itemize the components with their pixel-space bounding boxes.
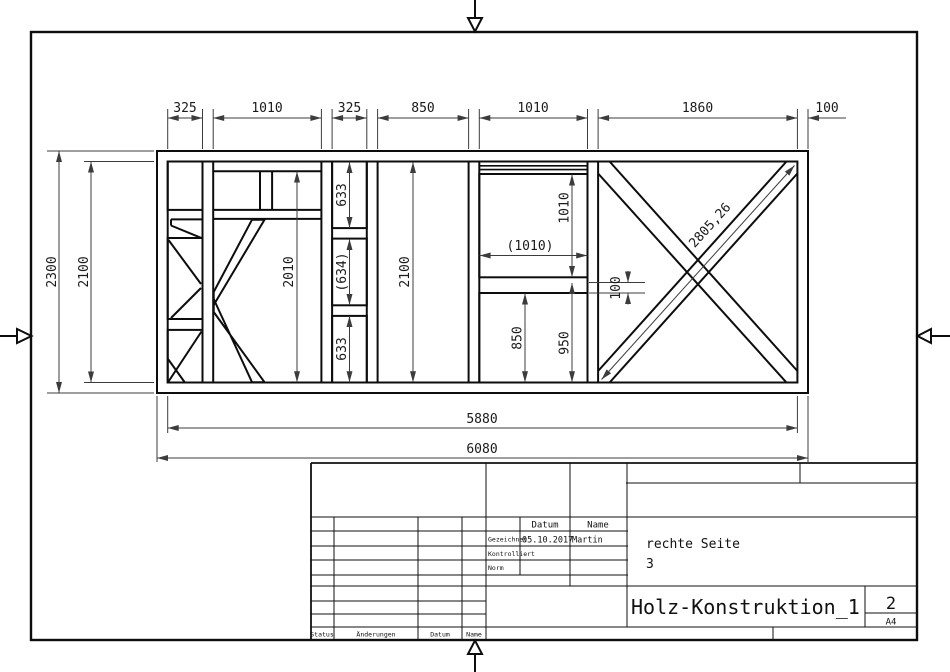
- dim-label: 325: [338, 101, 361, 116]
- dim-label: 2805,26: [686, 200, 734, 251]
- dim-label: 633: [335, 337, 350, 360]
- bay-1: [168, 162, 203, 383]
- centering-mark-top-icon: [468, 0, 482, 32]
- dim-label: 850: [511, 326, 526, 349]
- interior-dims: 2010 633 (634) 633 2100 1010 (1010) 950 …: [282, 162, 795, 382]
- bay-2: [213, 171, 321, 382]
- dim-label: 325: [173, 101, 196, 116]
- dim-label: 1010: [517, 101, 548, 116]
- centering-mark-right-icon: [918, 329, 950, 343]
- title-block: Datum Name Gezeichnet 05.10.2017 Martin …: [310, 463, 917, 640]
- titleblock-drawn-date: 05.10.2017: [522, 536, 573, 546]
- dim-label: 6080: [466, 442, 497, 457]
- titleblock-paper-size: A4: [886, 618, 897, 628]
- dim-label: 1010: [251, 101, 282, 116]
- centering-mark-left-icon: [0, 329, 32, 343]
- dim-label: 100: [609, 276, 624, 299]
- dim-label: 5880: [466, 412, 497, 427]
- titleblock-part-name: rechte Seite: [646, 537, 740, 552]
- cad-canvas: 325 1010 325 850 1010 1860 100 2300 2100…: [0, 0, 950, 672]
- titleblock-part-number: 3: [646, 557, 654, 572]
- dim-label: 2010: [282, 256, 297, 287]
- drawing-sheet: 325 1010 325 850 1010 1860 100 2300 2100…: [0, 0, 950, 672]
- left-dims: 2300 2100: [45, 151, 154, 393]
- dim-label: (1010): [507, 239, 554, 254]
- dimensions: 325 1010 325 850 1010 1860 100 2300 2100…: [45, 101, 846, 462]
- wall-structure: [157, 151, 808, 393]
- titleblock-rev-changes: Änderungen: [356, 630, 395, 639]
- dim-label: 1010: [558, 192, 573, 223]
- titleblock-norm-label: Norm: [488, 564, 504, 572]
- dim-label: 2100: [77, 256, 92, 287]
- titleblock-header-name: Name: [587, 521, 609, 531]
- dim-label: 850: [411, 101, 434, 116]
- dim-label: 100: [815, 101, 838, 116]
- titleblock-checked-label: Kontrolliert: [488, 550, 535, 558]
- dim-label: 950: [558, 331, 573, 354]
- titleblock-rev-status: Status: [310, 631, 334, 639]
- titleblock-drawn-name: Martin: [572, 536, 603, 546]
- sheet-frame: [31, 32, 917, 640]
- titleblock-rev-datum: Datum: [430, 631, 450, 639]
- bottom-dims: 5880 6080: [157, 396, 808, 462]
- titleblock-doc-title: Holz-Konstruktion_1: [631, 595, 860, 619]
- titleblock-rev-name: Name: [466, 631, 482, 639]
- titleblock-header-datum: Datum: [531, 521, 558, 531]
- dim-label: 633: [335, 183, 350, 206]
- dim-label: 2300: [45, 256, 60, 287]
- dim-label: (634): [335, 252, 350, 291]
- titleblock-sheet-number: 2: [886, 594, 896, 614]
- centering-mark-bottom-icon: [468, 641, 482, 672]
- dim-label: 2100: [398, 256, 413, 287]
- dim-label: 1860: [682, 101, 713, 116]
